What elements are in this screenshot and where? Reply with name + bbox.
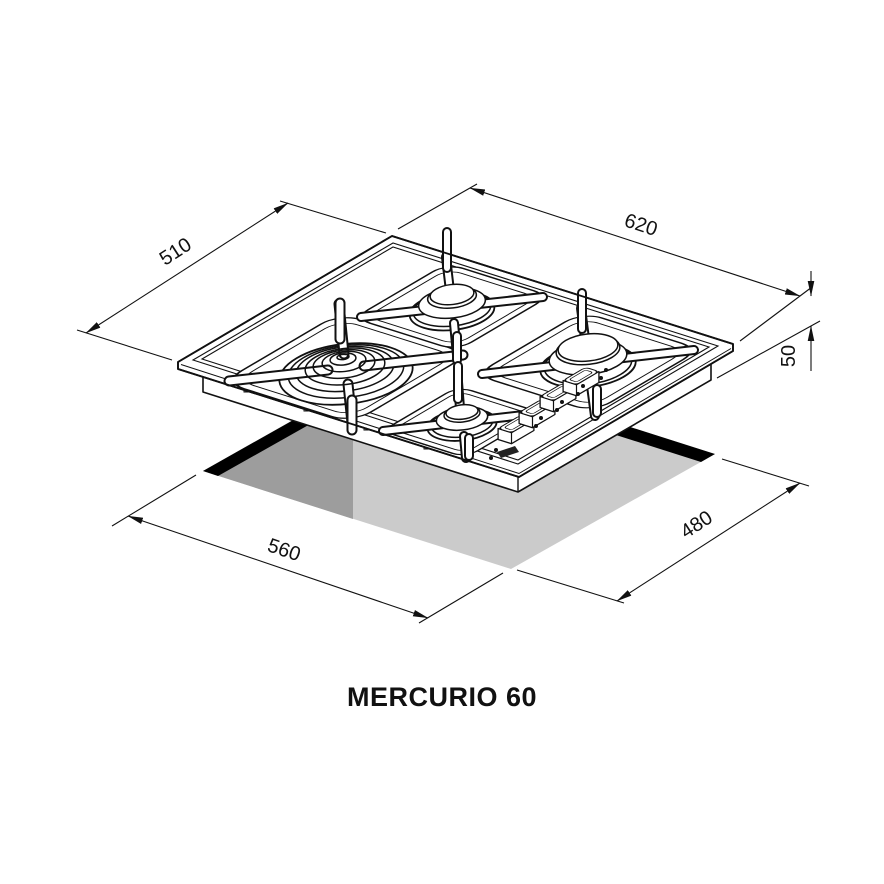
dim-cutout-depth: 480 [677,507,717,544]
technical-drawing-page: 510 620 50 560 480 MERCURIO 60 [0,0,884,884]
dim-cutout-width: 560 [265,534,304,566]
dim-hob-depth: 510 [156,234,196,271]
dim-build-in-height: 50 [778,345,800,367]
dim-line-hob-depth [86,203,288,333]
gas-hob-isometric-drawing: 510 620 50 560 480 [0,0,884,884]
dim-line-cutout-depth [617,483,800,601]
model-title: MERCURIO 60 [0,682,884,713]
dim-line-cutout-width [128,516,428,618]
dim-hob-width: 620 [622,210,661,241]
